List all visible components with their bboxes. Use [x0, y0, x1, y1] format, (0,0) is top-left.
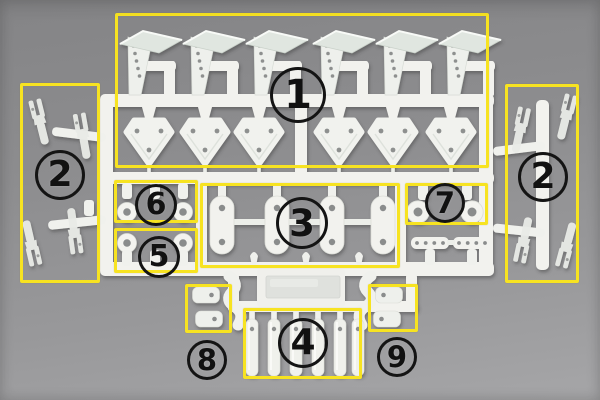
part-group-end-blocks-left — [193, 276, 241, 327]
group-5-number-label: 5 — [138, 236, 180, 278]
group-2-right-number-label: 2 — [518, 152, 568, 202]
group-8-number-label: 8 — [187, 340, 227, 380]
part-group-end-blocks-right — [359, 276, 402, 327]
group-6-number-label: 6 — [135, 184, 177, 226]
group-2-left-number-label: 2 — [35, 150, 85, 200]
group-9-number-label: 9 — [377, 337, 417, 377]
group-3-number-label: 3 — [276, 197, 328, 249]
sprue-photo: 1 2 2 3 4 5 6 7 8 9 — [0, 0, 600, 400]
group-7-number-label: 7 — [425, 183, 465, 223]
group-4-number-label: 4 — [278, 318, 328, 368]
group-1-number-label: 1 — [270, 67, 326, 123]
sprue-plate — [257, 269, 345, 307]
